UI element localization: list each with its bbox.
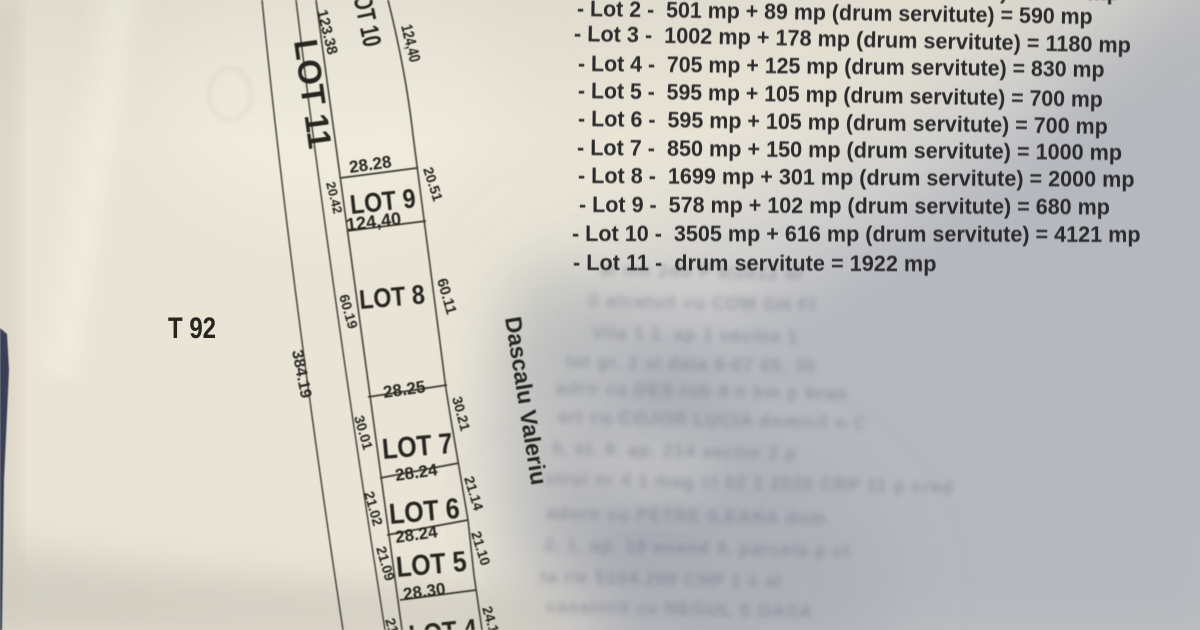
svg-text:20.42: 20.42 — [323, 180, 345, 215]
svg-text:28.30: 28.30 — [402, 579, 447, 604]
svg-text:Dascalu Valeriu: Dascalu Valeriu — [500, 315, 552, 487]
svg-text:24.1: 24.1 — [479, 604, 502, 630]
svg-text:60.11: 60.11 — [433, 276, 459, 316]
svg-text:LOT 5: LOT 5 — [395, 545, 468, 583]
svg-text:LOT 8: LOT 8 — [358, 280, 426, 316]
svg-text:LOT 4: LOT 4 — [407, 612, 479, 630]
svg-text:384.19: 384.19 — [288, 349, 314, 400]
svg-text:20.51: 20.51 — [420, 165, 446, 203]
svg-text:21.02: 21.02 — [361, 489, 386, 527]
svg-text:28.25: 28.25 — [382, 377, 427, 402]
svg-text:LOT 10: LOT 10 — [345, 0, 387, 49]
svg-text:28.28: 28.28 — [348, 152, 393, 177]
svg-text:LOT 7: LOT 7 — [381, 427, 454, 465]
